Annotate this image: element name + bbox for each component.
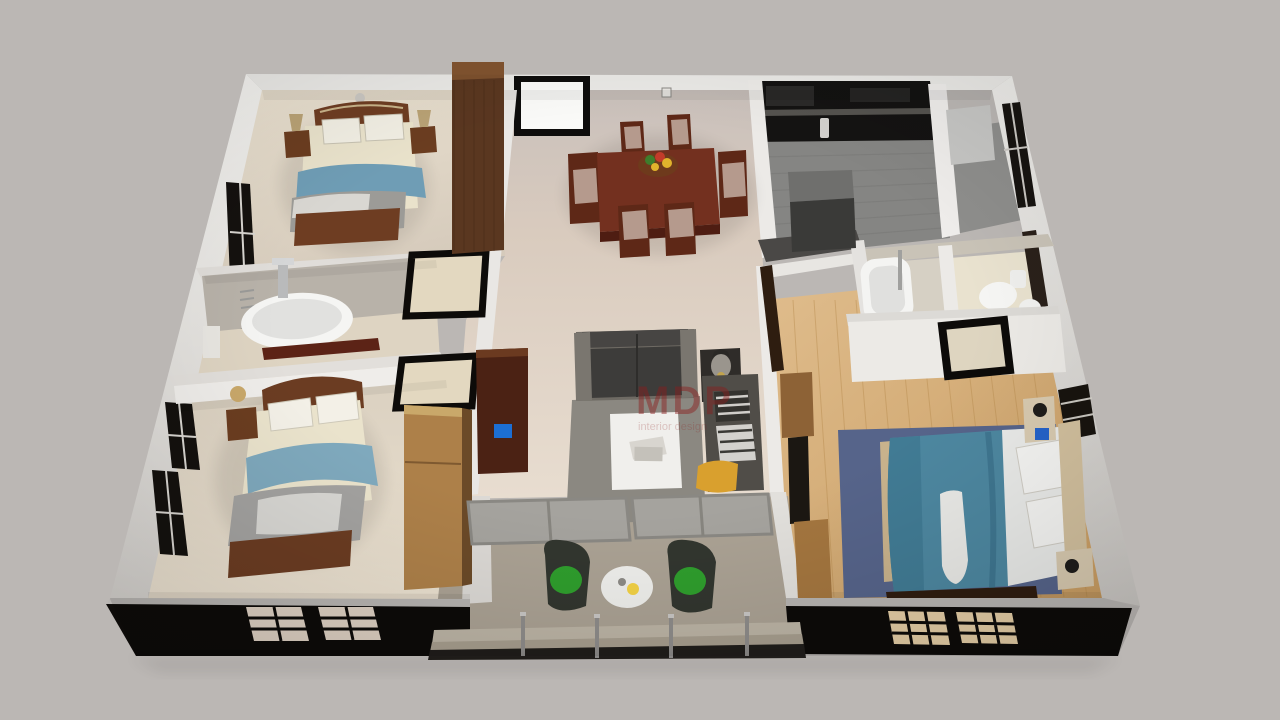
svg-text:interior design: interior design — [638, 421, 707, 433]
svg-text:MDP: MDP — [636, 379, 734, 423]
